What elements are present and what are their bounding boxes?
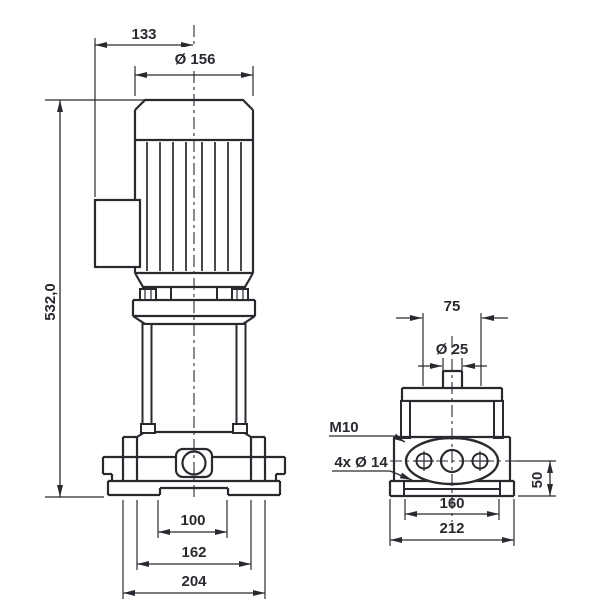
dim-bolt-spacing-side-label: 160 [439, 495, 464, 512]
tie-rod-nut-left [140, 289, 156, 300]
dim-base-width-side-label: 212 [439, 520, 464, 537]
dim-top-width-label: 133 [131, 26, 156, 43]
side-tie-rod-left [401, 401, 410, 438]
dim-base-height-label: 50 [529, 472, 546, 489]
dim-overall-height-label: 532,0 [42, 283, 59, 321]
terminal-box [95, 200, 140, 267]
dim-foot-spacing-front-label: 162 [181, 544, 206, 561]
side-view: 75 Ø 25 M10 4x Ø 14 50 160 [329, 298, 556, 546]
side-dimensions: 75 Ø 25 M10 4x Ø 14 50 160 [329, 298, 556, 546]
dim-port-offset-label: 75 [444, 298, 461, 315]
tie-rod-nut-right [232, 289, 248, 300]
dim-port-diameter-label: Ø 25 [436, 341, 469, 358]
pump-dimensional-drawing: 133 Ø 156 532,0 100 162 204 [0, 0, 600, 600]
front-view: 133 Ø 156 532,0 100 162 204 [42, 25, 285, 599]
base-nut-left [141, 424, 155, 433]
motor-fins [147, 142, 241, 271]
front-dimensions: 133 Ø 156 532,0 100 162 204 [42, 26, 265, 599]
side-tie-rod-right [494, 401, 503, 438]
dim-motor-diameter-label: Ø 156 [175, 51, 216, 68]
base-nut-right [233, 424, 247, 433]
dim-base-width-front-label: 204 [181, 573, 207, 590]
dim-bolt-spacing-front-label: 100 [180, 512, 205, 529]
tie-rod-right [237, 324, 246, 432]
dim-stud-thread-label: M10 [329, 419, 358, 436]
tie-rod-left [143, 324, 152, 432]
dim-mounting-holes-label: 4x Ø 14 [334, 454, 388, 471]
